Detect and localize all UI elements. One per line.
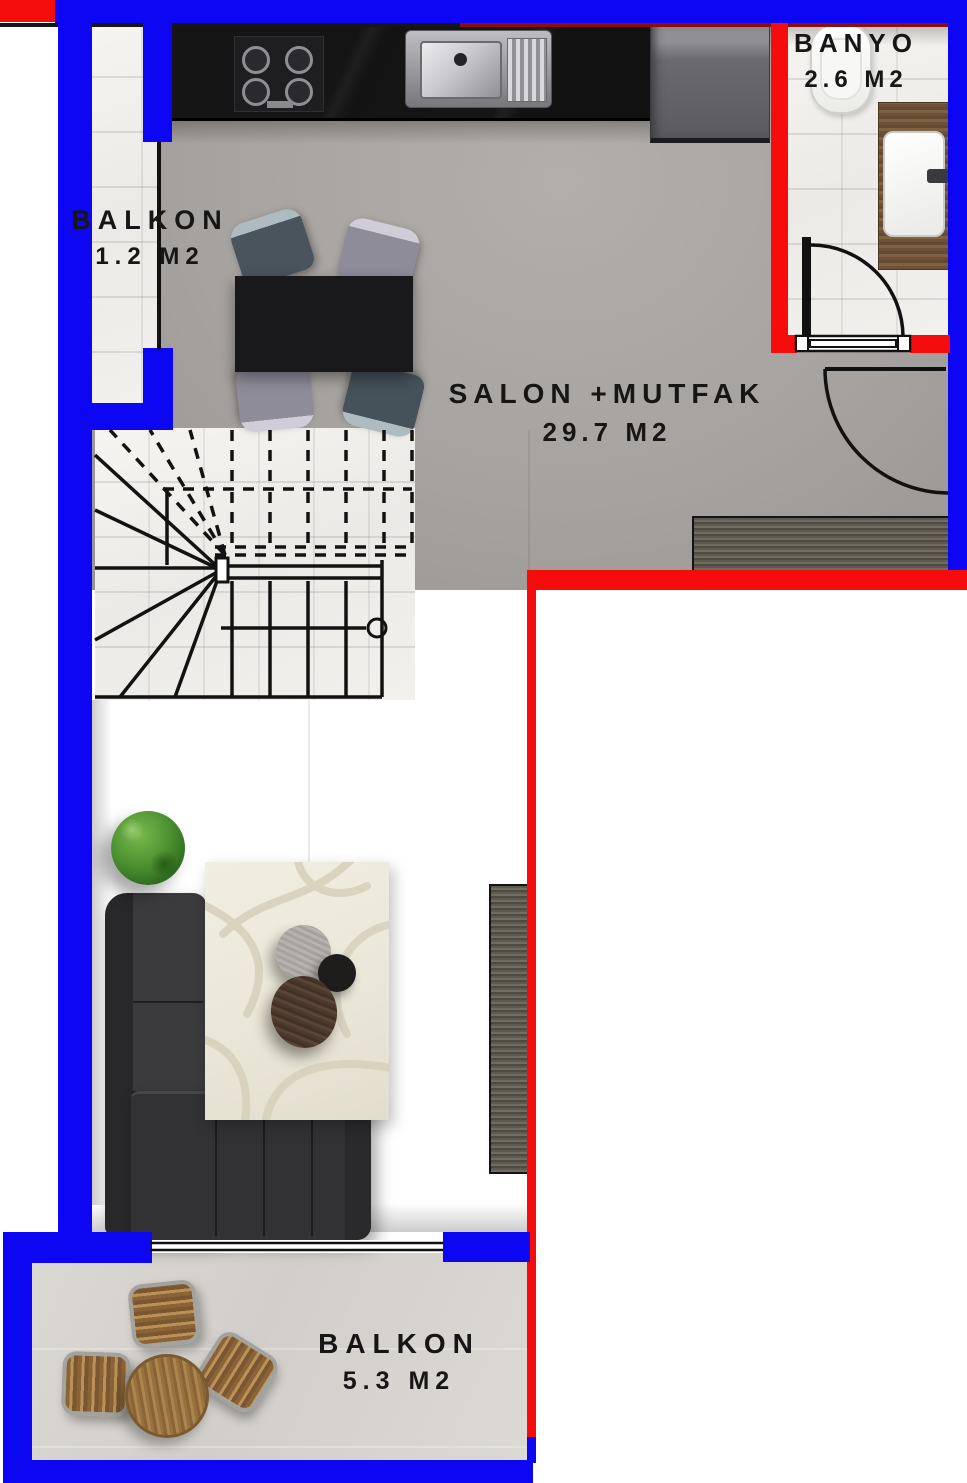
room-area: 1.2 M2 <box>71 243 229 271</box>
room-area: 29.7 M2 <box>449 417 766 448</box>
room-name: BALKON <box>71 205 229 236</box>
room-label-living-kitchen: SALON +MUTFAK 29.7 M2 <box>449 378 766 448</box>
room-label-balcony-top: BALKON 1.2 M2 <box>71 205 229 271</box>
room-area: 2.6 M2 <box>794 66 918 94</box>
entrance-door-icon <box>825 369 948 493</box>
floor-plan: BALKON 1.2 M2 BANYO 2.6 M2 SALON +MUTFAK… <box>0 0 967 1483</box>
staircase-icon <box>95 430 412 697</box>
room-label-balcony-bottom: BALKON 5.3 M2 <box>318 1328 480 1396</box>
room-label-bathroom: BANYO 2.6 M2 <box>794 28 918 94</box>
room-name: BALKON <box>318 1328 480 1360</box>
room-area: 5.3 M2 <box>318 1367 480 1396</box>
room-name: BANYO <box>794 28 918 59</box>
sliding-window-icon <box>150 1240 443 1253</box>
bathroom-door-icon <box>796 237 910 351</box>
room-name: SALON +MUTFAK <box>449 378 766 410</box>
